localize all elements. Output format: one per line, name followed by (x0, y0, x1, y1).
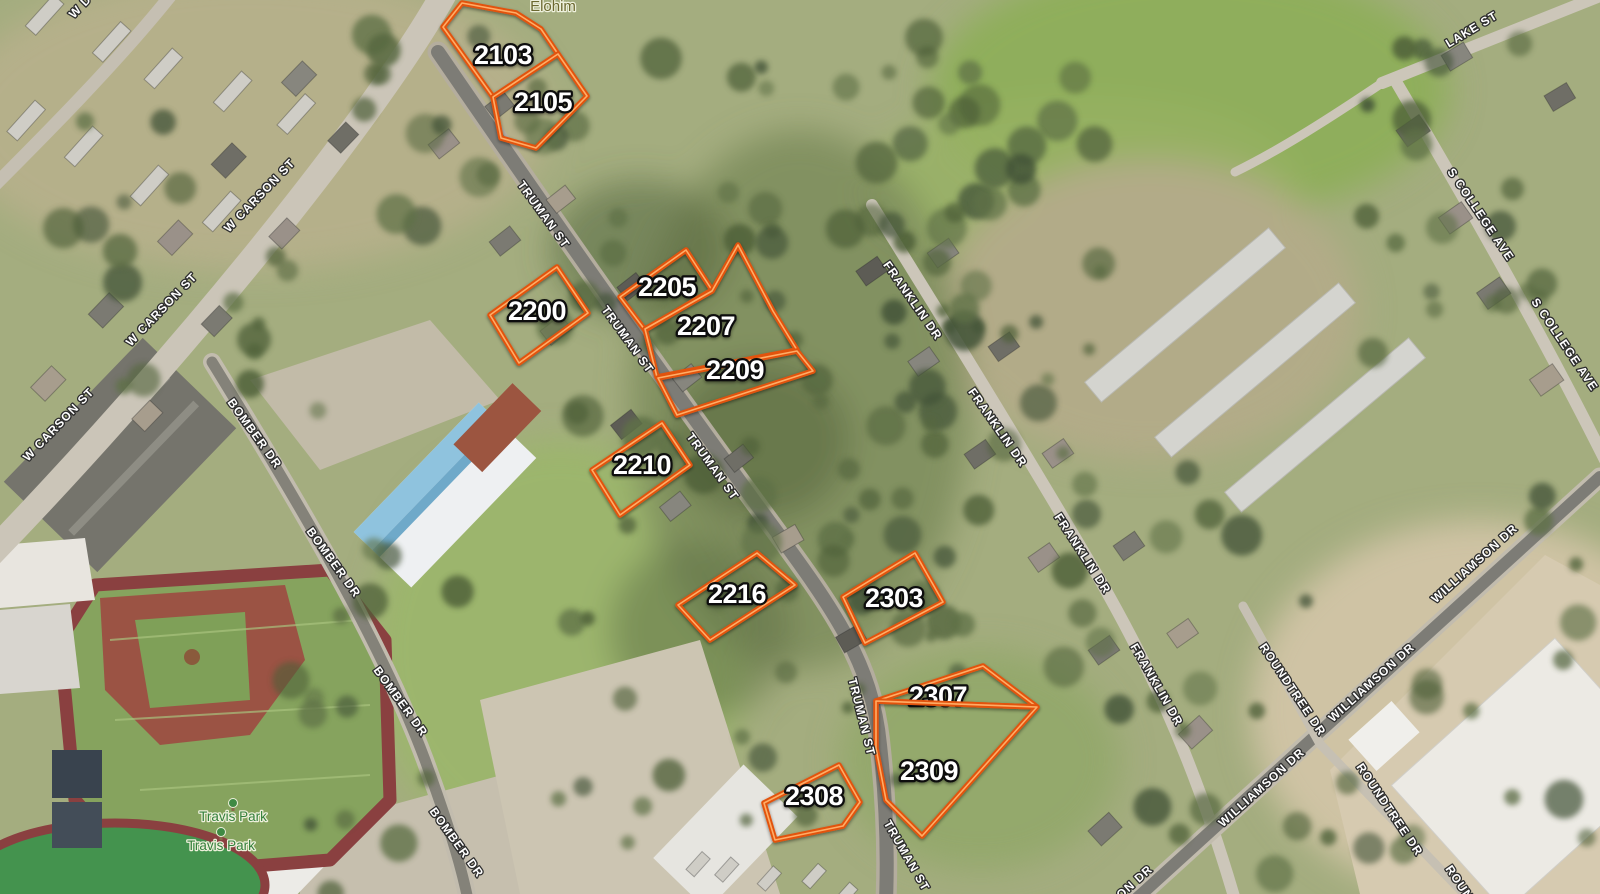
tree-canopy (838, 458, 860, 480)
tree-canopy (551, 791, 566, 806)
tree-canopy (859, 488, 881, 510)
tree-canopy (1044, 647, 1085, 688)
tree-canopy (1072, 500, 1101, 529)
tree-canopy (103, 234, 137, 268)
tree-canopy (1353, 832, 1384, 863)
parcel-number-label: 2308 (785, 781, 844, 811)
parcel-number-label: 2200 (508, 296, 566, 326)
tree-canopy (843, 507, 859, 523)
tree-canopy (558, 609, 585, 636)
tree-canopy (893, 126, 928, 161)
tree-canopy (1560, 604, 1596, 640)
tree-canopy (237, 323, 271, 357)
tree-canopy (1545, 780, 1584, 819)
tree-canopy (1029, 315, 1043, 329)
tree-canopy (973, 187, 1007, 221)
poi-label: Travis Park (187, 838, 255, 853)
tree-canopy (1283, 812, 1311, 840)
tree-canopy (1501, 177, 1524, 200)
tree-canopy (362, 538, 385, 561)
tree-canopy (336, 696, 358, 718)
parcel-number-label: 2303 (865, 583, 924, 613)
parcel-number-label: 2207 (677, 311, 735, 341)
tree-canopy (1104, 694, 1133, 723)
poi-place: Elohim (530, 0, 576, 15)
tree-canopy (916, 46, 938, 68)
tree-canopy (925, 630, 937, 642)
tree-canopy (727, 63, 756, 92)
tree-canopy (1082, 247, 1115, 280)
tree-canopy (1524, 507, 1553, 536)
tree-canopy (879, 212, 905, 238)
tree-canopy (866, 406, 905, 445)
tree-canopy (1077, 126, 1113, 162)
tree-canopy (376, 194, 416, 234)
tree-canopy (333, 607, 349, 623)
tree-canopy (127, 363, 161, 397)
tree-canopy (1504, 789, 1520, 805)
tree-canopy (1358, 338, 1388, 368)
tree-canopy (1400, 129, 1432, 161)
tree-canopy (934, 546, 956, 568)
tree-canopy (103, 263, 142, 302)
tree-canopy (881, 299, 906, 324)
tree-canopy (975, 148, 1015, 188)
tree-canopy (236, 370, 264, 398)
tree-canopy (619, 516, 637, 534)
tree-canopy (613, 687, 637, 711)
parcel-number-label: 2105 (514, 87, 573, 117)
tree-canopy (817, 545, 849, 577)
tree-canopy (477, 163, 501, 187)
tree-canopy (1336, 771, 1359, 794)
tree-canopy (600, 240, 627, 267)
tree-canopy (633, 797, 652, 816)
tree-canopy (923, 248, 951, 276)
tree-canopy (1412, 669, 1443, 700)
tree-canopy (755, 226, 788, 259)
tree-canopy (801, 364, 832, 395)
tree-canopy (923, 417, 938, 432)
tree-canopy (959, 84, 1001, 126)
tree-canopy (1175, 460, 1200, 485)
tree-canopy (1000, 325, 1018, 343)
tree-canopy (740, 290, 754, 304)
tree-canopy (945, 202, 965, 222)
tree-canopy (1320, 829, 1336, 845)
tree-canopy (1529, 483, 1556, 510)
parcel-number-label: 2209 (706, 355, 765, 385)
tree-canopy (562, 395, 604, 437)
tree-canopy (608, 208, 627, 227)
tree-canopy (76, 112, 94, 130)
tree-canopy (741, 437, 760, 456)
tree-canopy (1578, 829, 1596, 847)
satellite-map[interactable]: 2103210522002205220722092210221623032307… (0, 0, 1600, 894)
poi-label: Travis Park (199, 809, 267, 824)
tree-canopy (1056, 446, 1070, 460)
tree-canopy (310, 402, 327, 419)
tree-canopy (1059, 62, 1091, 94)
tree-canopy (1068, 599, 1096, 627)
tree-canopy (117, 194, 132, 209)
parcel-number-label: 2216 (708, 579, 767, 609)
tree-canopy (1392, 36, 1416, 60)
tree-canopy (740, 814, 753, 827)
tree-canopy (304, 818, 317, 831)
tree-canopy (741, 476, 777, 512)
tree-canopy (1386, 234, 1405, 253)
tree-canopy (1493, 287, 1520, 314)
tree-canopy (958, 60, 982, 84)
tree-canopy (775, 661, 797, 683)
tree-canopy (266, 247, 286, 267)
tree-canopy (1569, 557, 1583, 571)
tree-canopy (921, 430, 949, 458)
tree-canopy (1507, 31, 1532, 56)
tree-canopy (621, 835, 635, 849)
tree-canopy (441, 575, 473, 607)
tree-canopy (961, 270, 992, 301)
tree-canopy (734, 729, 750, 745)
tree-canopy (884, 333, 900, 349)
parcel-number-label: 2309 (900, 756, 959, 786)
tree-canopy (380, 824, 417, 861)
tree-canopy (1426, 212, 1458, 244)
tree-canopy (1086, 627, 1116, 657)
tree-canopy (1425, 48, 1454, 77)
tree-canopy (352, 97, 376, 121)
tree-canopy (1423, 283, 1439, 299)
tree-canopy (223, 292, 243, 312)
tree-canopy (826, 209, 865, 248)
poi-label: Elohim (530, 0, 576, 15)
tree-canopy (718, 182, 739, 203)
parcel-number-label: 2103 (474, 40, 533, 70)
tree-canopy (963, 495, 994, 526)
tree-canopy (150, 109, 175, 134)
tree-canopy (884, 516, 922, 554)
tree-canopy (1041, 373, 1054, 386)
tree-canopy (1256, 855, 1293, 892)
tree-canopy (1020, 384, 1057, 421)
tree-canopy (1195, 500, 1225, 530)
tree-canopy (882, 65, 897, 80)
parcel-number-label: 2210 (613, 450, 671, 480)
tree-canopy (418, 770, 435, 787)
tree-canopy (653, 759, 686, 792)
tree-canopy (1037, 101, 1077, 141)
tree-canopy (950, 612, 975, 637)
tree-canopy (43, 208, 84, 249)
map-imagery (0, 0, 1600, 894)
tree-canopy (1150, 520, 1183, 553)
tree-canopy (1134, 788, 1172, 826)
tree-canopy (1354, 204, 1379, 229)
tree-canopy (833, 74, 860, 101)
tree-canopy (1083, 343, 1095, 355)
tree-canopy (367, 33, 401, 67)
tree-canopy (1426, 301, 1443, 318)
tree-canopy (164, 172, 196, 204)
tree-canopy (936, 304, 950, 318)
tree-canopy (748, 743, 776, 771)
satellite-map-canvas[interactable]: 2103210522002205220722092210221623032307… (0, 0, 1600, 894)
tree-canopy (938, 113, 960, 135)
tree-canopy (298, 700, 326, 728)
tree-canopy (432, 115, 451, 134)
tree-canopy (1007, 126, 1046, 165)
tree-canopy (1527, 269, 1558, 300)
tree-canopy (1221, 515, 1262, 556)
tree-canopy (581, 611, 595, 625)
tree-canopy (1553, 650, 1573, 670)
tree-canopy (758, 80, 774, 96)
tree-canopy (640, 38, 682, 80)
tree-canopy (1299, 594, 1313, 608)
tree-canopy (748, 192, 782, 226)
tree-canopy (891, 487, 913, 509)
tree-canopy (912, 86, 944, 118)
tree-canopy (272, 662, 309, 699)
tree-canopy (856, 142, 898, 184)
tree-canopy (1072, 472, 1097, 497)
tree-canopy (754, 60, 768, 74)
tree-canopy (1249, 703, 1265, 719)
tree-canopy (909, 369, 946, 406)
tree-canopy (1169, 824, 1190, 845)
tree-canopy (1360, 97, 1375, 112)
parcel-number-label: 2205 (638, 272, 697, 302)
tree-canopy (336, 810, 355, 829)
tree-canopy (1183, 671, 1217, 705)
tree-canopy (1463, 703, 1479, 719)
tree-canopy (573, 777, 592, 796)
